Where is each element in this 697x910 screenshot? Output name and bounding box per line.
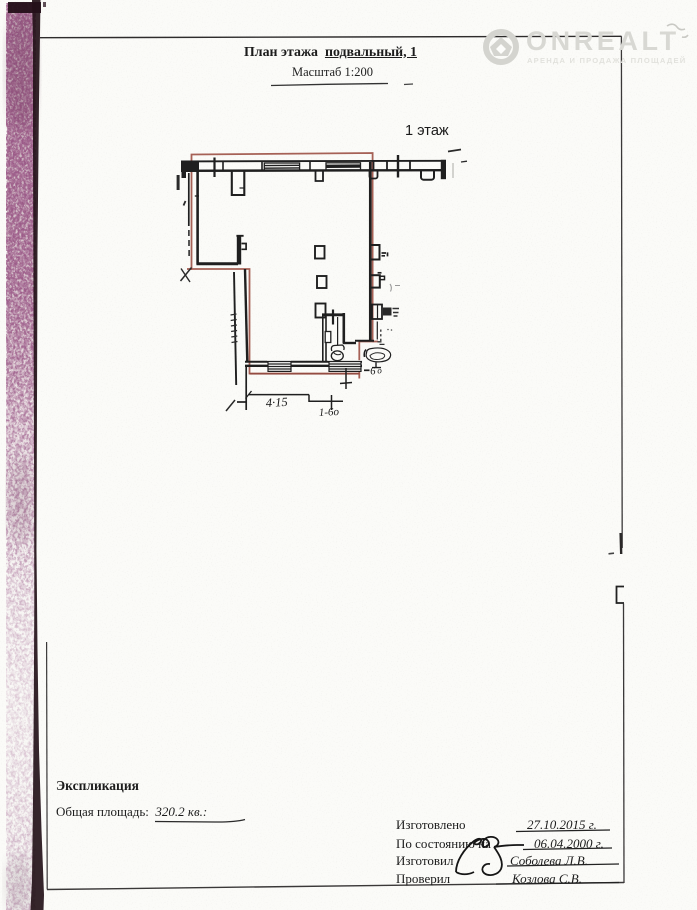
svg-text:4·15: 4·15 — [265, 395, 288, 410]
svg-text:1-6o: 1-6o — [319, 406, 340, 419]
svg-text:o: o — [377, 365, 383, 375]
